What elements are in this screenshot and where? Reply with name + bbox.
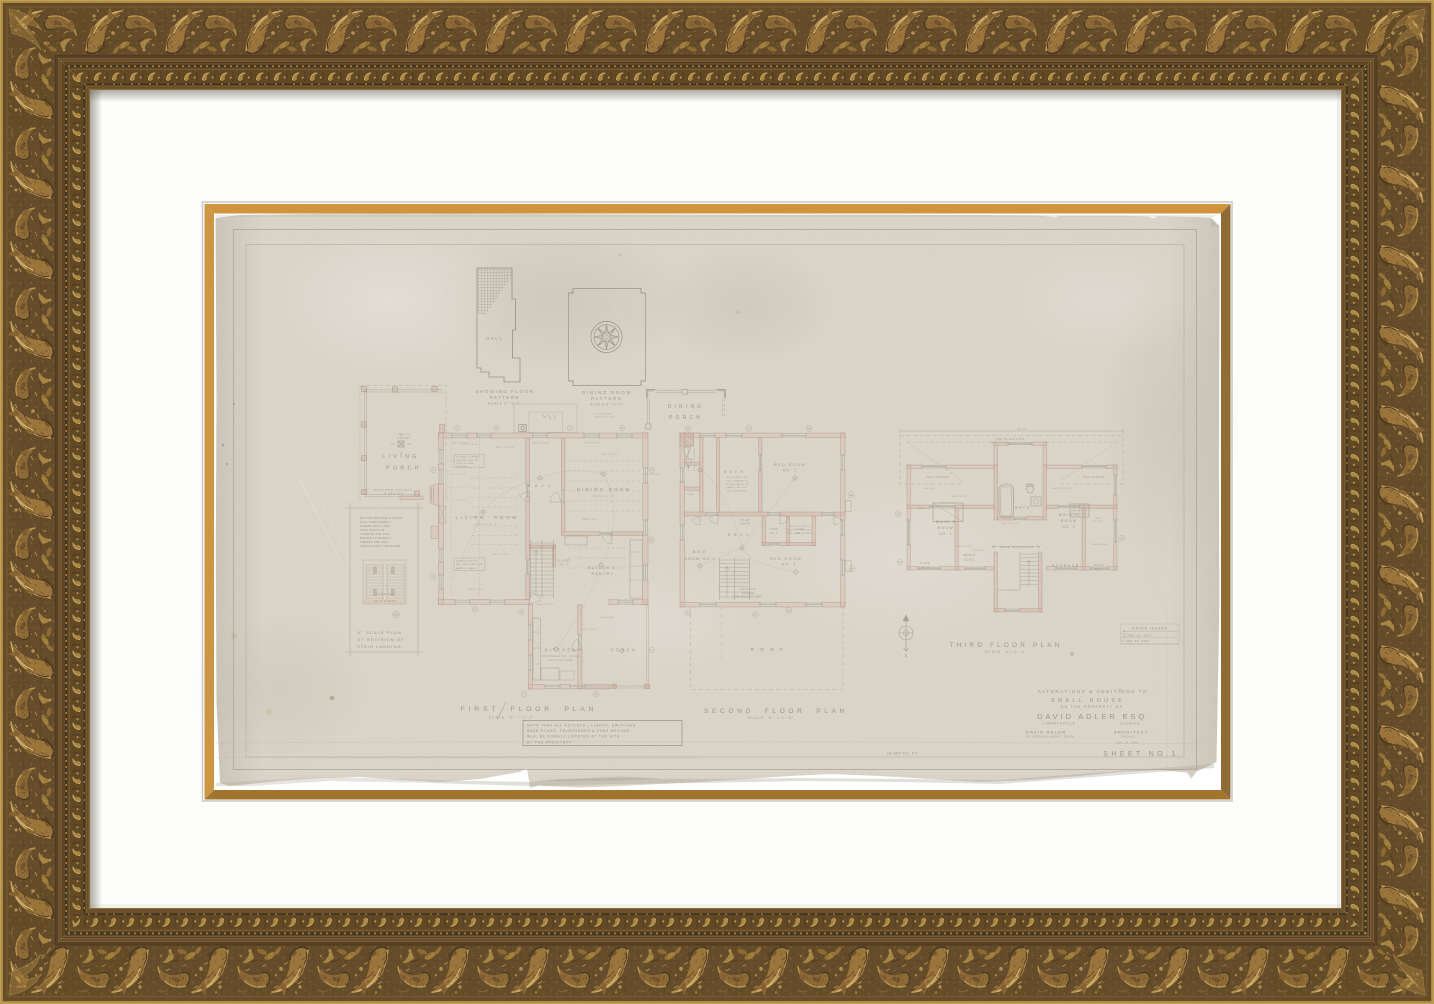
svg-text:NO. SWITCHES FOR: NO. SWITCHES FOR: [456, 564, 483, 566]
svg-text:BASE PLUG: BASE PLUG: [583, 518, 598, 521]
svg-text:ROOM: ROOM: [1061, 519, 1078, 523]
svg-text:STAIR LANDING: STAIR LANDING: [357, 644, 402, 649]
svg-text:DAVID ADLER: DAVID ADLER: [1026, 730, 1066, 735]
svg-text:DOTTED BRACKETS SHOW: DOTTED BRACKETS SHOW: [360, 516, 402, 520]
svg-text:OF REVISION OF: OF REVISION OF: [357, 637, 405, 642]
svg-text:BATH THE OLD: BATH THE OLD: [727, 486, 746, 489]
svg-text:SCALE ¼" = 1'-0": SCALE ¼" = 1'-0": [489, 716, 535, 720]
svg-text:305: 305: [898, 561, 903, 564]
svg-text:OUTLET ONE EA: OUTLET ONE EA: [456, 459, 478, 462]
svg-text:THIRD FLOOR PLAN: THIRD FLOOR PLAN: [950, 642, 1063, 649]
svg-text:LIVING: LIVING: [382, 454, 419, 460]
svg-text:SHELF: SHELF: [918, 508, 926, 510]
svg-text:NEW SINK HERE: NEW SINK HERE: [549, 660, 574, 662]
svg-text:NO.4: NO.4: [770, 532, 778, 535]
svg-text:209: 209: [686, 612, 691, 615]
svg-text:206: 206: [787, 609, 792, 612]
svg-text:DATES ISSUED: DATES ISSUED: [1132, 627, 1167, 631]
svg-text:CLOS: CLOS: [920, 561, 930, 565]
svg-text:CLOS: CLOS: [686, 494, 694, 496]
svg-text:BASE PLUG: BASE PLUG: [468, 588, 483, 591]
svg-text:PATTERN: PATTERN: [591, 396, 623, 401]
svg-text:BATH: BATH: [1015, 506, 1031, 510]
svg-text:TREADS AND RAIL: TREADS AND RAIL: [360, 540, 389, 544]
svg-text:SECOND FLOOR PLAN: SECOND FLOOR PLAN: [704, 708, 848, 715]
svg-text:ALTERATIONS & ADDITIONS TO: ALTERATIONS & ADDITIONS TO: [1038, 689, 1148, 694]
svg-text:BASE PLUGS, TELEPHONES & FANS: BASE PLUGS, TELEPHONES & FANS BEYOND: [527, 729, 630, 733]
svg-text:CHICAGO: CHICAGO: [1121, 736, 1135, 739]
svg-text:NO. 2: NO. 2: [783, 469, 798, 473]
svg-text:NO. 3: NO. 3: [782, 563, 797, 567]
svg-text:PORCH: PORCH: [386, 466, 422, 472]
svg-text:WILL TEMPORARILY: WILL TEMPORARILY: [360, 520, 391, 524]
svg-text:RAD OUTLET: RAD OUTLET: [462, 443, 479, 446]
svg-text:207: 207: [753, 613, 758, 616]
svg-text:IN CEILING: IN CEILING: [382, 492, 403, 496]
svg-text:DINING ROOM: DINING ROOM: [577, 487, 631, 492]
svg-text:THROUGHOUT RELOCATE: THROUGHOUT RELOCATE: [360, 544, 401, 548]
svg-text:MAID'S: MAID'S: [1059, 513, 1079, 517]
svg-text:CEIL'G 9'-2": CEIL'G 9'-2": [593, 495, 615, 498]
svg-text:ON THE PROPERTY OF: ON THE PROPERTY OF: [1061, 705, 1124, 709]
svg-text:RADIO OUTLET: RADIO OUTLET: [495, 446, 515, 449]
svg-text:IN BASE: IN BASE: [456, 465, 467, 468]
svg-text:NO. 2: NO. 2: [1062, 525, 1075, 529]
svg-text:SPACE: SPACE: [740, 523, 750, 526]
svg-text:CLOS: CLOS: [964, 558, 974, 562]
svg-text:TILE BE RESET: TILE BE RESET: [727, 491, 747, 493]
svg-text:NEW WINDOW: NEW WINDOW: [1083, 477, 1105, 479]
svg-text:PATTERN: PATTERN: [490, 395, 520, 400]
svg-text:BED: BED: [693, 549, 707, 554]
svg-text:PORCH: PORCH: [611, 648, 637, 653]
svg-text:211: 211: [747, 427, 751, 430]
svg-text:208: 208: [807, 427, 812, 430]
svg-text:RAD OUTLET: RAD OUTLET: [537, 603, 554, 606]
svg-text:430 MICHIGAN AVENUE, SOUTH: 430 MICHIGAN AVENUE, SOUTH: [1026, 736, 1075, 739]
svg-text:WILL BE FINALLY LOCATED AT THE: WILL BE FINALLY LOCATED AT THE SITE: [527, 735, 620, 739]
svg-text:RAD OUTLET: RAD OUTLET: [952, 495, 968, 498]
svg-text:RAD OUTLET: RAD OUTLET: [492, 553, 509, 556]
svg-text:FULL SHADED IS: FULL SHADED IS: [726, 479, 748, 482]
svg-text:UP 17 RISERS: UP 17 RISERS: [374, 600, 396, 603]
svg-text:NOTE THAT ALL OUTLETS ( LIGHTS: NOTE THAT ALL OUTLETS ( LIGHTS, SWITCHES: [527, 724, 636, 728]
svg-text:ROOM NO.1: ROOM NO.1: [684, 557, 715, 561]
svg-text:PORCH: PORCH: [669, 415, 703, 421]
svg-text:306: 306: [897, 513, 902, 516]
svg-text:BY THE ARCHITECT: BY THE ARCHITECT: [527, 740, 572, 744]
svg-text:WHERE RAILS AND: WHERE RAILS AND: [360, 524, 390, 528]
svg-text:H A L L: H A L L: [528, 484, 553, 488]
svg-text:B A T H: B A T H: [724, 470, 744, 474]
svg-text:ILLINOIS: ILLINOIS: [1120, 721, 1140, 725]
svg-text:KITCHEN: KITCHEN: [545, 648, 577, 653]
svg-text:16,000 CU. FT.: 16,000 CU. FT.: [887, 752, 919, 756]
svg-text:CLOS: CLOS: [1094, 563, 1104, 567]
svg-text:NOTE THAT THE: NOTE THAT THE: [727, 476, 748, 479]
svg-text:CEDAR: CEDAR: [963, 553, 976, 557]
svg-text:ARCHITECT: ARCHITECT: [1114, 730, 1149, 735]
svg-text:NOTE THIS: NOTE THIS: [740, 589, 756, 591]
svg-text:REFRIGERATOR SPACE: REFRIGERATOR SPACE: [543, 655, 579, 658]
svg-text:BED ROOM: BED ROOM: [774, 463, 806, 467]
svg-text:SCALE 3"=1'-0": SCALE 3"=1'-0": [590, 403, 624, 407]
svg-text:SHELVES & POLE: SHELVES & POLE: [693, 448, 695, 472]
svg-text:RAD OUTLET: RAD OUTLET: [582, 628, 599, 631]
svg-text:JAN. 13, 1931: JAN. 13, 1931: [1116, 741, 1139, 745]
svg-text:REAR HALL: REAR HALL: [601, 616, 616, 619]
svg-text:1 JAN. 13, 1931: 1 JAN. 13, 1931: [1124, 633, 1152, 637]
svg-text:LANDING THE WILL: LANDING THE WILL: [360, 532, 391, 536]
svg-text:205: 205: [850, 568, 855, 571]
svg-text:FIRST FLOOR PLAN: FIRST FLOOR PLAN: [461, 706, 598, 713]
svg-text:SHEET NO.1: SHEET NO.1: [1103, 751, 1179, 758]
svg-text:34'-6": 34'-6": [1017, 427, 1027, 431]
svg-text:NO.5: NO.5: [921, 566, 929, 570]
svg-text:LIBERTYVILLE: LIBERTYVILLE: [1043, 721, 1076, 725]
svg-text:LANDING: LANDING: [376, 592, 394, 596]
svg-text:SHELVES: SHELVES: [923, 488, 935, 490]
svg-text:NO.6: NO.6: [1095, 568, 1103, 572]
svg-text:RAD OUTLET: RAD OUTLET: [602, 453, 619, 456]
svg-text:LOW ROOF: LOW ROOF: [971, 550, 985, 552]
svg-text:CEIL'G 9'-2": CEIL'G 9'-2": [475, 522, 499, 526]
svg-text:NEW WINDOW: NEW WINDOW: [532, 443, 550, 445]
svg-text:FOR BEDS & LAMPS: FOR BEDS & LAMPS: [787, 532, 813, 535]
svg-text:LAMPS & RADIO: LAMPS & RADIO: [456, 567, 478, 570]
svg-text:CLOSET: CLOSET: [557, 559, 571, 563]
svg-text:RAD: RAD: [1095, 517, 1101, 520]
svg-text:ROOM: ROOM: [938, 526, 955, 530]
svg-text:HEAD ROOM: HEAD ROOM: [957, 545, 972, 548]
svg-text:SHELVES & POLE: SHELVES & POLE: [687, 448, 689, 472]
svg-text:SMALL HOUSE: SMALL HOUSE: [1051, 698, 1125, 704]
svg-text:DINING ROOM: DINING ROOM: [582, 390, 632, 395]
svg-text:CLOS: CLOS: [769, 527, 778, 531]
svg-text:BUTLER'S: BUTLER'S: [588, 566, 616, 570]
svg-text:VARNISH FLOOR: VARNISH FLOOR: [594, 416, 614, 419]
svg-text:NO. 1: NO. 1: [559, 564, 569, 567]
svg-text:SCALE 3"=1'-0": SCALE 3"=1'-0": [488, 402, 522, 406]
svg-text:DORMER: DORMER: [742, 593, 755, 595]
svg-text:ALL OUTLETS &: ALL OUTLETS &: [790, 525, 811, 528]
svg-text:NEW OUTLETS: NEW OUTLETS: [1001, 523, 1019, 525]
svg-text:OUTLET: OUTLET: [397, 436, 411, 440]
svg-text:SEE ELEVATION: SEE ELEVATION: [995, 437, 1024, 441]
svg-text:STORAGE: STORAGE: [1052, 564, 1080, 568]
svg-text:SIDE OF BED: SIDE OF BED: [456, 463, 474, 465]
svg-text:PANTRY: PANTRY: [592, 572, 615, 576]
svg-text:NOTE ROD OUTLETS: NOTE ROD OUTLETS: [374, 488, 413, 492]
svg-text:OUTLET: OUTLET: [1092, 521, 1103, 523]
svg-text:SCALE ¼"=1'-0": SCALE ¼"=1'-0": [985, 650, 1027, 654]
svg-text:SHOWING FLOOR: SHOWING FLOOR: [476, 389, 535, 394]
svg-text:NEW WINDOW: NEW WINDOW: [643, 474, 661, 476]
svg-text:SCALE ¼" = 1'-0": SCALE ¼" = 1'-0": [748, 716, 794, 720]
svg-text:NEW WINDOW: NEW WINDOW: [1092, 544, 1109, 546]
svg-text:R O O F: R O O F: [751, 647, 786, 652]
svg-text:DOUBLE CONVEN: DOUBLE CONVEN: [456, 457, 480, 459]
svg-text:NEW WINDOW: NEW WINDOW: [1053, 488, 1072, 490]
svg-text:2 JAN. 26, 1931: 2 JAN. 26, 1931: [1122, 639, 1150, 643]
svg-text:REPAIR TO REBUILT: REPAIR TO REBUILT: [360, 536, 392, 540]
svg-text:204: 204: [849, 494, 854, 497]
svg-text:NO. 1: NO. 1: [939, 532, 952, 536]
svg-text:SWITCH THIS WALL: SWITCH THIS WALL: [787, 528, 813, 531]
svg-text:DOUBLE OUTLET: DOUBLE OUTLET: [456, 561, 479, 563]
svg-text:DAVID ADLER ESQ: DAVID ADLER ESQ: [1037, 712, 1147, 721]
svg-text:IN THE WALLS OF: IN THE WALLS OF: [725, 483, 749, 486]
svg-text:304: 304: [1120, 537, 1125, 540]
svg-text:TRIM POSTS AT: TRIM POSTS AT: [360, 528, 385, 532]
svg-text:BED ROOM: BED ROOM: [770, 557, 802, 561]
svg-text:LIVING ROOM: LIVING ROOM: [455, 515, 518, 520]
svg-text:MAID'S: MAID'S: [936, 520, 956, 524]
svg-text:3 COATS SPAR: 3 COATS SPAR: [595, 413, 613, 416]
svg-text:210: 210: [686, 427, 691, 430]
svg-text:HALL: HALL: [486, 336, 504, 341]
svg-text:NEW WINDOW HERE: NEW WINDOW HERE: [733, 597, 762, 599]
svg-text:½" SCALE PLAN: ½" SCALE PLAN: [357, 630, 402, 635]
svg-text:NEW WINDOW: NEW WINDOW: [927, 477, 949, 479]
svg-text:NEW WINDOW: NEW WINDOW: [583, 443, 601, 445]
svg-text:203: 203: [394, 614, 399, 617]
svg-text:DINING: DINING: [668, 404, 705, 410]
